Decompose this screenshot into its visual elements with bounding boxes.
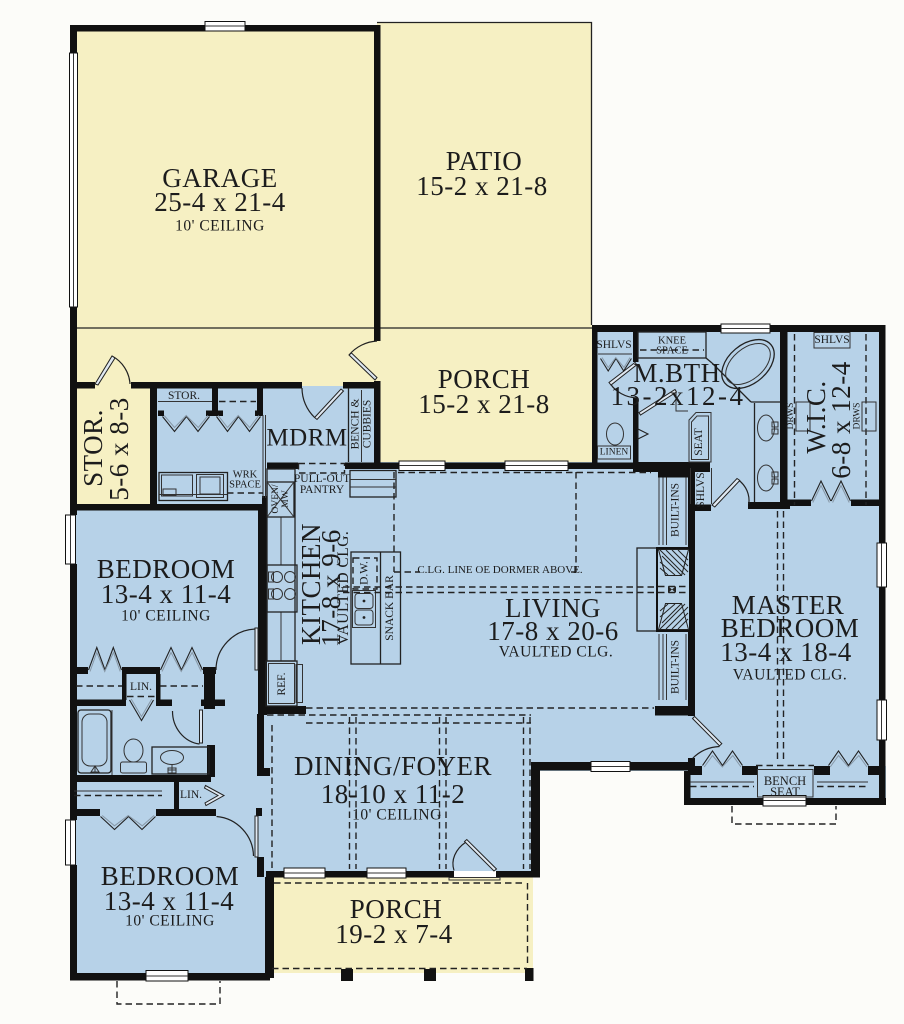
svg-text:SHLVS: SHLVS	[814, 334, 849, 346]
svg-text:6-8 x 12-4: 6-8 x 12-4	[826, 361, 856, 478]
svg-text:13-4 x 11-4: 13-4 x 11-4	[101, 579, 231, 609]
svg-text:VAULTED CLG.: VAULTED CLG.	[733, 667, 848, 684]
svg-text:CUBBIES: CUBBIES	[362, 400, 374, 449]
svg-text:MW: MW	[281, 490, 291, 507]
svg-text:SPACE: SPACE	[656, 346, 688, 357]
svg-text:10' CEILING: 10' CEILING	[125, 913, 215, 930]
svg-text:SPACE: SPACE	[229, 480, 261, 491]
svg-text:25-4 x 21-4: 25-4 x 21-4	[154, 187, 285, 217]
svg-text:REF.: REF.	[276, 672, 288, 695]
svg-text:19-2 x 7-4: 19-2 x 7-4	[335, 919, 452, 949]
svg-text:17-8 x 20-6: 17-8 x 20-6	[487, 616, 618, 646]
svg-text:18-10 x 11-2: 18-10 x 11-2	[321, 779, 465, 809]
svg-text:15-2 x 21-8: 15-2 x 21-8	[416, 171, 547, 201]
svg-text:D.W.: D.W.	[359, 561, 371, 585]
svg-text:10' CEILING: 10' CEILING	[121, 608, 211, 625]
svg-text:5-6 x 8-3: 5-6 x 8-3	[104, 397, 134, 500]
svg-text:C.LG. LINE OE DORMER ABOVE.: C.LG. LINE OE DORMER ABOVE.	[417, 564, 583, 576]
svg-text:10' CEILING: 10' CEILING	[175, 218, 265, 235]
svg-text:VAULTED CLG.: VAULTED CLG.	[499, 644, 614, 661]
svg-text:DINING/FOYER: DINING/FOYER	[294, 751, 492, 781]
svg-text:MDRM: MDRM	[266, 425, 347, 452]
svg-text:13-2x12-4: 13-2x12-4	[611, 381, 746, 411]
svg-text:13-4 x 18-4: 13-4 x 18-4	[720, 637, 851, 667]
svg-text:SNACK BAR: SNACK BAR	[384, 575, 396, 641]
svg-text:13-4 x 11-4: 13-4 x 11-4	[104, 886, 234, 916]
svg-text:SHLVS: SHLVS	[596, 339, 631, 351]
svg-text:15-2 x 21-8: 15-2 x 21-8	[418, 389, 549, 419]
svg-text:SEAT: SEAT	[693, 428, 705, 455]
svg-text:SEAT: SEAT	[770, 785, 800, 799]
svg-text:STOR.: STOR.	[168, 390, 200, 402]
svg-text:OVEN/: OVEN/	[271, 484, 281, 513]
svg-text:DRWS: DRWS	[786, 403, 796, 430]
svg-text:BUILT-INS: BUILT-INS	[670, 483, 682, 537]
svg-text:LIN.: LIN.	[130, 681, 152, 693]
svg-text:BUILT-INS: BUILT-INS	[670, 640, 682, 694]
svg-text:10' CEILING: 10' CEILING	[352, 807, 442, 824]
svg-text:DRWS: DRWS	[853, 403, 863, 430]
svg-text:BENCH &: BENCH &	[350, 399, 362, 450]
svg-text:LINEN: LINEN	[600, 448, 629, 458]
svg-text:PANTRY: PANTRY	[300, 484, 345, 496]
svg-text:LIN.: LIN.	[180, 789, 202, 801]
svg-text:SHLVS: SHLVS	[695, 472, 707, 507]
svg-text:VAULTED CLG.: VAULTED CLG.	[335, 531, 352, 646]
